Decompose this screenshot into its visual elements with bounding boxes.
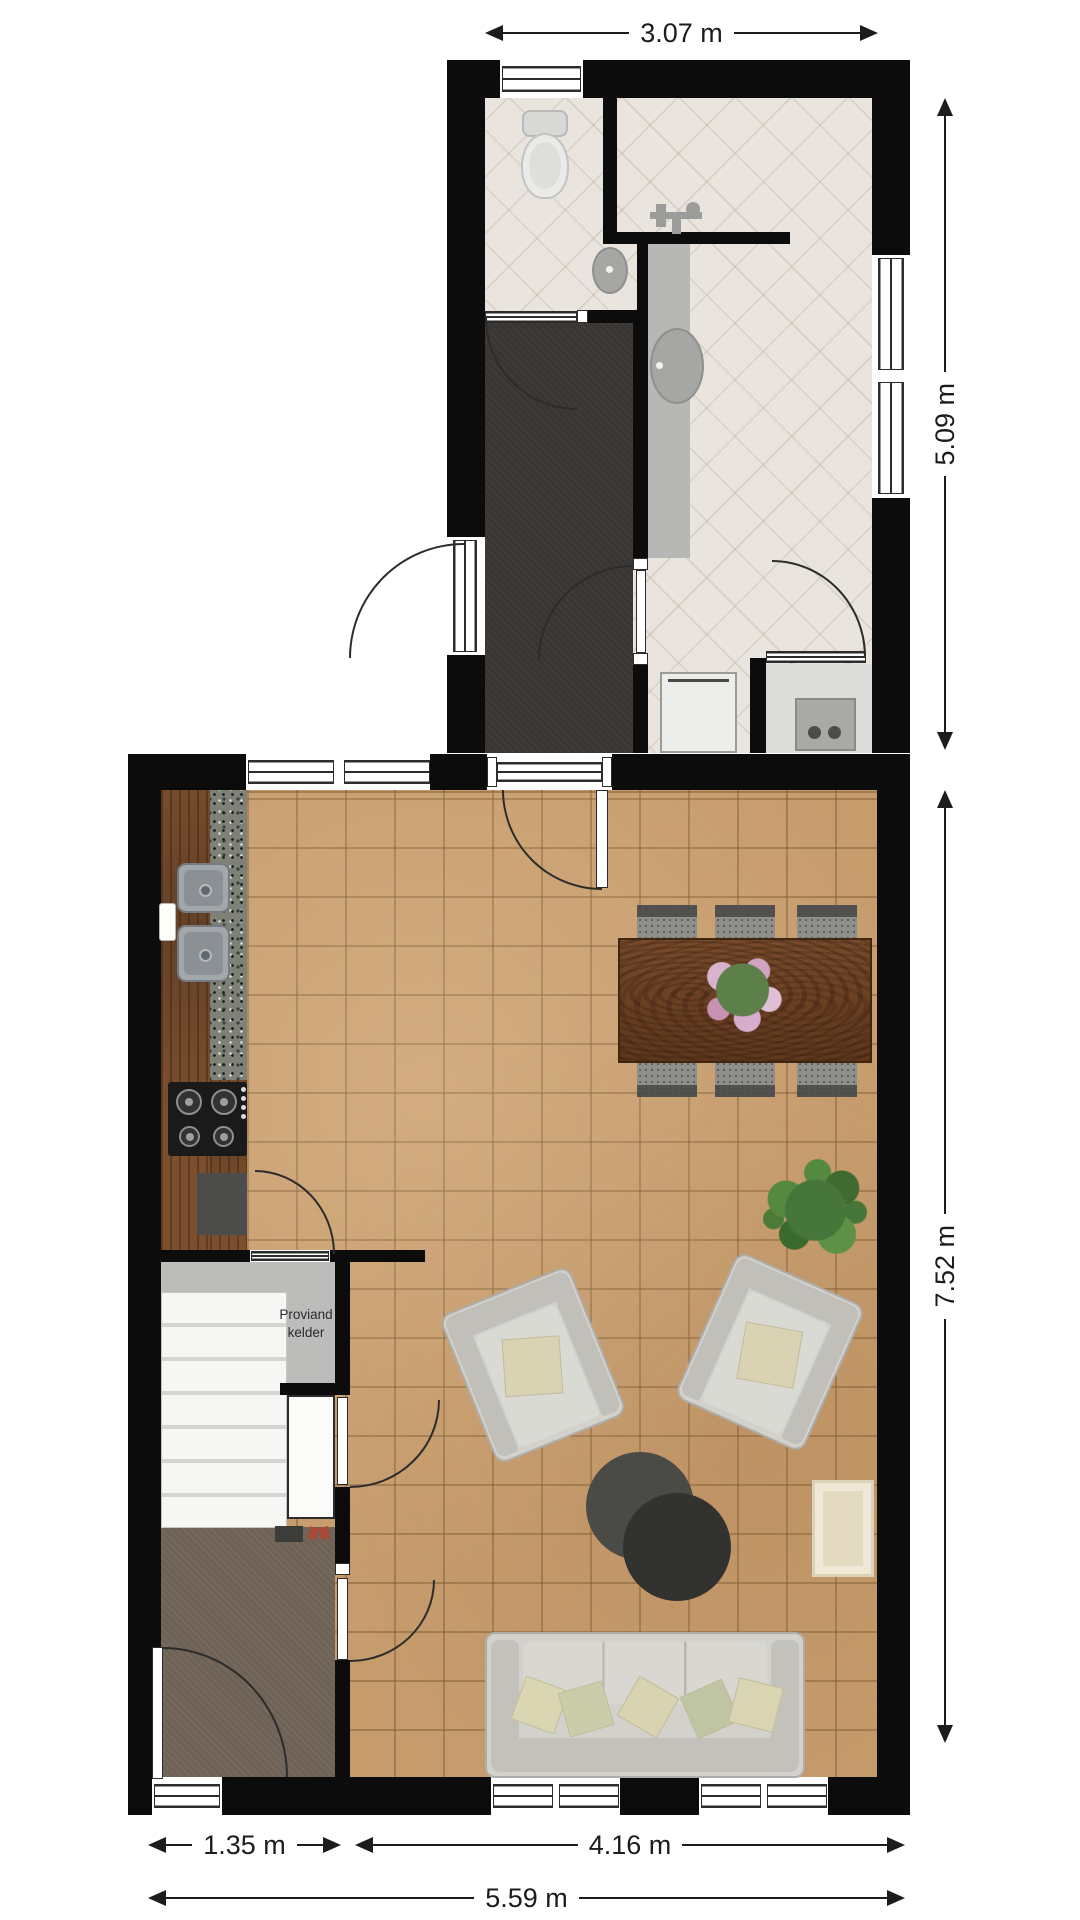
main-door-jamb-left bbox=[487, 757, 497, 787]
flower-centerpiece bbox=[695, 950, 790, 1045]
shower-mixer bbox=[650, 200, 702, 234]
arrow-up-icon bbox=[937, 98, 953, 116]
dimension-hall-width-label: 1.35 m bbox=[192, 1832, 297, 1859]
boiler-closet-west-wall bbox=[750, 658, 766, 753]
pantry-label-line2: kelder bbox=[258, 1324, 354, 1342]
dining-chair-top-2 bbox=[715, 905, 775, 941]
burner-4 bbox=[213, 1126, 234, 1147]
vanity-faucet-dot bbox=[656, 362, 663, 369]
hallway-bathroom-door bbox=[636, 570, 646, 653]
washing-machine bbox=[660, 672, 737, 753]
south-window-left-b bbox=[559, 1784, 619, 1808]
closet-door-leaf bbox=[337, 1397, 348, 1485]
arrow-right-icon bbox=[887, 1890, 905, 1906]
hob-knob-4 bbox=[241, 1114, 246, 1119]
arrow-left-icon bbox=[148, 1890, 166, 1906]
brown-room-door-jamb bbox=[335, 1563, 350, 1575]
burner-1 bbox=[176, 1089, 202, 1115]
pantry-label-line1: Proviand bbox=[258, 1306, 354, 1324]
dimension-total-width: 5.59 m bbox=[148, 1885, 905, 1911]
toilet-nook-east-wall bbox=[637, 244, 648, 318]
hallway-east-wall-upper bbox=[633, 318, 648, 558]
floorplan-canvas: Proviand kelder bbox=[0, 0, 1080, 1920]
annex-east-window-upper bbox=[878, 258, 904, 370]
toilet-bowl bbox=[521, 133, 569, 199]
south-window-right-b bbox=[767, 1784, 827, 1808]
arrow-down-icon bbox=[937, 732, 953, 750]
dining-chair-bottom-2 bbox=[715, 1061, 775, 1097]
armchair-left-cushion bbox=[501, 1335, 563, 1397]
burner-2 bbox=[211, 1089, 237, 1115]
arrow-left-icon bbox=[148, 1837, 166, 1853]
pantry-label: Proviand kelder bbox=[258, 1306, 354, 1342]
toilet-door-jamb bbox=[577, 310, 588, 323]
annex-north-window bbox=[502, 66, 581, 92]
stair-closet bbox=[287, 1395, 335, 1519]
south-window-right-a bbox=[701, 1784, 761, 1808]
dimension-hall-width: 1.35 m bbox=[148, 1832, 341, 1858]
dining-chair-top-3 bbox=[797, 905, 857, 941]
pantry-east-wall-mid bbox=[335, 1487, 350, 1563]
dimension-living-width-label: 4.16 m bbox=[578, 1832, 683, 1859]
dimension-annex-width: 3.07 m bbox=[485, 20, 878, 46]
living-north-window-left bbox=[248, 760, 334, 784]
entry-door-leaf bbox=[152, 1647, 163, 1779]
annex-east-window-lower bbox=[878, 382, 904, 494]
dimension-annex-height-label: 5.09 m bbox=[932, 372, 959, 477]
kitchen-appliance-box bbox=[197, 1173, 247, 1235]
arrow-left-icon bbox=[485, 25, 503, 41]
side-table bbox=[812, 1480, 874, 1577]
entry-door bbox=[154, 1784, 220, 1808]
potted-plant bbox=[763, 1155, 868, 1265]
toilet-room-south-wall bbox=[588, 310, 637, 323]
annex-entry-door-arc bbox=[349, 543, 464, 658]
doormat-item-dark bbox=[275, 1526, 303, 1542]
dimension-living-height: 7.52 m bbox=[930, 790, 960, 1743]
main-door bbox=[497, 762, 602, 782]
hob-knob-3 bbox=[241, 1105, 246, 1110]
arrow-up-icon bbox=[937, 790, 953, 808]
sofa bbox=[485, 1632, 805, 1778]
hallway-door-jamb-bottom bbox=[633, 653, 648, 665]
shoe-right bbox=[319, 1526, 330, 1539]
boiler-dot-right bbox=[828, 726, 841, 739]
brown-room-east-wall bbox=[335, 1660, 350, 1815]
toilet-room-east-wall bbox=[603, 98, 617, 232]
sofa-back bbox=[492, 1738, 798, 1772]
hallway-door-jamb-top bbox=[633, 558, 648, 570]
dining-chair-bottom-3 bbox=[797, 1061, 857, 1097]
closet-north-wall bbox=[280, 1383, 350, 1395]
arrow-right-icon bbox=[887, 1837, 905, 1853]
burner-3 bbox=[179, 1126, 200, 1147]
hob-knob-2 bbox=[241, 1096, 246, 1101]
arrow-right-icon bbox=[323, 1837, 341, 1853]
basin-drain-dot bbox=[606, 266, 613, 273]
hallway-east-wall-lower bbox=[633, 665, 648, 753]
boiler-dot-left bbox=[808, 726, 821, 739]
arrow-left-icon bbox=[355, 1837, 373, 1853]
dining-chair-top-1 bbox=[637, 905, 697, 941]
kitchen-sink-lower bbox=[177, 925, 230, 982]
arrow-down-icon bbox=[937, 1725, 953, 1743]
living-east-wall bbox=[877, 790, 910, 1815]
living-north-window-right bbox=[344, 760, 430, 784]
main-door-jamb-right bbox=[602, 757, 612, 787]
kitchen-faucet bbox=[159, 903, 176, 941]
hob-knob-1 bbox=[241, 1087, 246, 1092]
dimension-annex-width-label: 3.07 m bbox=[629, 20, 734, 47]
arrow-right-icon bbox=[860, 25, 878, 41]
dimension-total-width-label: 5.59 m bbox=[474, 1885, 579, 1912]
armchair-right-cushion bbox=[736, 1322, 803, 1389]
brown-room-door-leaf bbox=[337, 1578, 348, 1660]
dining-chair-bottom-1 bbox=[637, 1061, 697, 1097]
kitchen-sink-upper bbox=[177, 863, 230, 913]
boiler bbox=[795, 698, 856, 751]
dimension-living-width: 4.16 m bbox=[355, 1832, 905, 1858]
coffee-table-lower bbox=[623, 1493, 731, 1601]
south-window-left-a bbox=[493, 1784, 553, 1808]
dimension-annex-height: 5.09 m bbox=[930, 98, 960, 750]
dimension-living-height-label: 7.52 m bbox=[932, 1214, 959, 1319]
